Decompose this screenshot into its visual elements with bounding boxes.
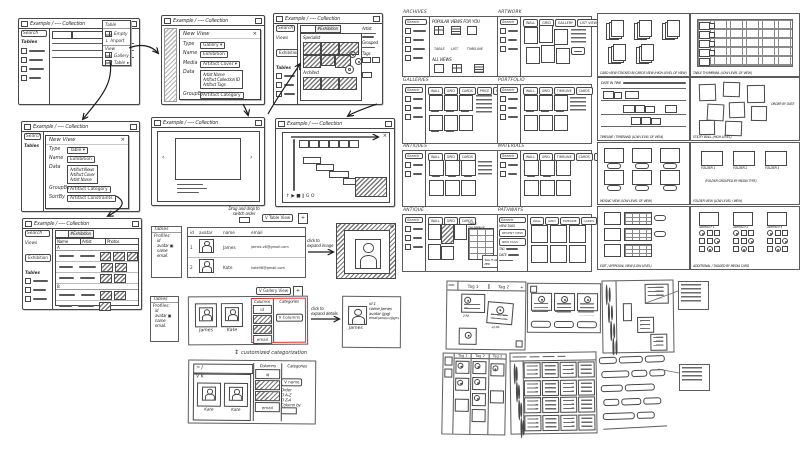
artifact-thumb[interactable] <box>303 42 321 55</box>
artifact-label: ARTIFACT 2 <box>733 225 748 229</box>
matrix-card[interactable] <box>524 397 541 413</box>
window-title: Example / ---- Collection <box>163 120 253 126</box>
matrix-card[interactable] <box>524 415 541 431</box>
card[interactable] <box>429 115 443 131</box>
card[interactable] <box>445 180 460 196</box>
timeline-item <box>645 106 655 113</box>
name-input[interactable]: Exhibition <box>67 156 95 163</box>
groupby-select[interactable]: Artifact Category <box>200 92 244 99</box>
timeline-item <box>641 117 651 125</box>
card-selected[interactable] <box>441 224 454 244</box>
pill-rows-board <box>599 353 676 434</box>
window-icon <box>278 121 285 127</box>
card[interactable] <box>524 115 538 131</box>
menu-section-view: View <box>103 45 130 51</box>
note-scribble <box>478 161 492 177</box>
search-input[interactable]: Search <box>405 19 427 25</box>
panel-title: ANTIQUE <box>403 208 424 213</box>
view-chip[interactable]: PRICE <box>477 87 492 95</box>
person-card[interactable]: Kate <box>197 383 221 412</box>
timeline-item[interactable] <box>299 140 309 148</box>
matrix-card[interactable] <box>542 379 559 395</box>
tab-exhibition[interactable]: #Exhibition <box>315 25 341 33</box>
sticky-card <box>747 85 765 103</box>
level-cell-stacks: CARD VIEW STACKED IN CARDS VIEW (HIGH LE… <box>597 13 690 77</box>
card[interactable] <box>556 160 571 176</box>
tab[interactable] <box>300 25 316 33</box>
matrix-card[interactable] <box>560 397 577 413</box>
media-select[interactable]: Artifact Cover ▾ <box>200 61 240 68</box>
sidebar-item-exhibition[interactable]: Exhibition <box>276 49 298 57</box>
category-name-select[interactable]: V name <box>281 378 302 386</box>
profile-icon[interactable] <box>513 364 515 385</box>
card <box>733 212 753 226</box>
sidebar-item[interactable] <box>276 91 295 97</box>
sticky-note[interactable] <box>459 328 477 345</box>
panel-sidebar: Search VIEW TAGS RECENT VIEW NEW TAGS TA… <box>498 215 528 271</box>
timeline-item <box>625 91 639 99</box>
sidebar-item[interactable] <box>276 73 295 79</box>
kanban-card[interactable] <box>473 361 487 374</box>
table-row[interactable]: 1 James james.v8@gmail.com <box>188 237 305 258</box>
add-icon[interactable] <box>355 58 362 65</box>
matrix-card[interactable] <box>542 362 559 378</box>
prev-arrow[interactable]: ‹ <box>162 154 164 161</box>
close-icon[interactable] <box>255 120 262 126</box>
tagged-item[interactable] <box>623 303 632 321</box>
profile-card[interactable] <box>554 293 575 311</box>
tag-chip[interactable] <box>362 72 372 78</box>
settings-icon[interactable] <box>349 51 356 58</box>
view-chip[interactable]: GRID <box>539 87 553 95</box>
columns-categories-highlight: Columns id email Categories V Columns <box>251 298 306 343</box>
card-stack <box>636 44 653 63</box>
card[interactable] <box>539 25 553 43</box>
card[interactable] <box>444 115 458 131</box>
matrix-card[interactable] <box>560 362 577 378</box>
sidebar-item[interactable] <box>276 82 295 88</box>
player-controls[interactable]: ↑ ▶ ■ ‖ G O <box>286 194 315 199</box>
menu-header: Table <box>103 21 130 29</box>
card[interactable] <box>540 180 555 196</box>
type-select[interactable]: Table ▾ <box>67 147 88 154</box>
collapsed-group-j[interactable]: > J <box>193 363 253 374</box>
card[interactable] <box>524 160 539 176</box>
matrix-card[interactable] <box>578 361 595 377</box>
card[interactable] <box>461 160 476 176</box>
note-chip <box>571 47 585 55</box>
close-icon[interactable] <box>255 18 262 24</box>
card[interactable] <box>556 180 571 196</box>
view-switcher-chip[interactable]: V Gallery View <box>256 287 291 295</box>
timeline-item[interactable] <box>319 140 329 148</box>
columnby-label: Column by <box>281 402 313 407</box>
gallery-icon <box>105 52 112 58</box>
sidebar-item[interactable] <box>25 296 50 302</box>
expanded-details-card[interactable]: James id 1 name James avatar (jpg) email… <box>342 296 401 348</box>
person-card[interactable]: James <box>195 303 217 333</box>
matrix-card[interactable] <box>578 396 595 412</box>
kanban-card[interactable] <box>490 390 504 403</box>
card[interactable] <box>429 95 443 111</box>
note-scribble <box>571 29 586 43</box>
profile-icon[interactable] <box>518 399 520 420</box>
detail-card[interactable] <box>645 284 669 304</box>
card-name: James <box>349 326 363 331</box>
card-stack <box>662 20 679 39</box>
sticky-note[interactable] <box>461 294 485 313</box>
card[interactable] <box>429 160 444 176</box>
sidebar-item[interactable] <box>21 66 47 72</box>
card <box>604 244 621 257</box>
dialog-titlebar: New View× <box>46 136 128 145</box>
close-icon[interactable] <box>130 21 137 27</box>
profile-card[interactable] <box>577 293 598 311</box>
level-cell-mosaic: MOSAIC VIEW (LOW LEVEL OF VIEW) <box>597 142 690 205</box>
close-icon[interactable]: × <box>383 133 387 139</box>
browse-panel: Search WALL GRID CARDS PRICE FILTER <box>402 84 499 144</box>
artifact-thumb[interactable] <box>303 55 321 68</box>
artifact-thumb[interactable] <box>303 77 321 90</box>
sidebar-item[interactable] <box>21 48 47 54</box>
recent-view-button[interactable]: RECENT VIEW <box>499 229 526 237</box>
view-icon-list[interactable]: LIST <box>451 26 461 54</box>
sticky-card <box>707 104 725 122</box>
panel-sidebar: Search <box>498 85 521 143</box>
folder-label: FOLDER 2 <box>733 166 747 170</box>
sidebar-item-tables[interactable]: Tables <box>21 40 47 45</box>
matrix-card[interactable] <box>542 397 559 413</box>
cell-caption: MOSAIC VIEW (LOW LEVEL OF VIEW) <box>600 199 652 203</box>
sidebar-item[interactable] <box>21 75 47 81</box>
expand-badge-icon[interactable] <box>345 65 354 74</box>
search-input[interactable]: Search <box>500 87 518 93</box>
groupby-select[interactable]: Artifact Category <box>67 186 111 193</box>
profile-icon[interactable] <box>515 382 517 403</box>
card[interactable] <box>554 29 568 45</box>
view-chip[interactable]: CARDS <box>576 87 593 95</box>
search-input[interactable]: Search <box>405 217 423 223</box>
search-input[interactable]: Search <box>21 30 47 37</box>
sidebar-item-views[interactable]: Views <box>276 35 295 40</box>
small-card[interactable] <box>637 317 654 333</box>
card[interactable] <box>428 244 441 260</box>
column-cell-id[interactable]: id <box>253 305 272 314</box>
column-header-name[interactable]: name <box>223 230 251 235</box>
view-chip[interactable]: WALL <box>428 87 443 95</box>
table-icon <box>21 66 27 72</box>
search-input[interactable]: Search <box>500 19 518 25</box>
card[interactable] <box>539 115 553 131</box>
view-icon-table[interactable]: TABLE <box>434 26 445 54</box>
card[interactable] <box>459 95 473 111</box>
sidebar-item-exhibition[interactable]: Exhibition <box>25 254 51 262</box>
titlebar: Example / ---- Collection <box>152 118 264 128</box>
window-icon <box>25 221 32 227</box>
sidebar-item-tables[interactable]: Tables <box>276 65 295 70</box>
timeline-item <box>603 91 614 99</box>
kanban-card[interactable] <box>455 399 469 412</box>
next-arrow[interactable]: › <box>250 154 252 161</box>
column-header[interactable]: Artist <box>81 239 106 244</box>
data-list[interactable]: Artifact News Artifact Cover Artist Name <box>67 165 98 184</box>
panel-sidebar: Search <box>403 17 430 76</box>
expanded-image-card[interactable] <box>344 230 390 274</box>
add-tab-button[interactable]: + <box>518 284 525 289</box>
person-card[interactable]: Kate <box>221 303 243 333</box>
sticky-card <box>699 120 715 135</box>
kanban-column-tag1[interactable]: Tag 1 <box>455 354 471 359</box>
card-stack <box>606 20 623 39</box>
column-header[interactable]: Name <box>56 239 81 244</box>
type-select[interactable]: Gallery ▾ <box>200 42 225 49</box>
view-icon-timeline[interactable]: TIMELINE <box>467 26 483 54</box>
artifact-thumb[interactable] <box>321 55 335 66</box>
profile-icon[interactable] <box>520 417 522 438</box>
column-cell-email[interactable]: email <box>255 402 280 412</box>
tag-chip[interactable] <box>362 57 371 63</box>
search-input[interactable]: Search <box>500 153 518 159</box>
panel-title: GALLERIES <box>403 78 429 83</box>
view-chip[interactable]: GRID <box>545 217 559 225</box>
artifact-thumb[interactable] <box>321 77 339 90</box>
mosaic-card <box>604 148 624 163</box>
mosaic-card <box>632 148 652 163</box>
sidebar-item[interactable] <box>25 287 50 293</box>
column-header-email[interactable]: email <box>251 230 263 235</box>
artist-label: Artist <box>362 26 380 31</box>
column-cell-name[interactable] <box>255 391 280 401</box>
column-header[interactable]: Photos <box>106 239 138 244</box>
column-cell-id[interactable]: id <box>255 369 280 379</box>
tab[interactable] <box>55 230 69 238</box>
menu-item-gallery[interactable]: Gallery <box>105 52 128 58</box>
sidebar-item-tables[interactable]: Tables <box>24 143 41 148</box>
add-view-button[interactable]: + <box>298 213 308 224</box>
cascade-bar <box>329 171 349 178</box>
matrix-card[interactable] <box>578 379 595 395</box>
card[interactable] <box>524 95 538 111</box>
sidebar: Search Views Exhibition Tables <box>23 228 53 309</box>
kanban-card[interactable] <box>473 377 487 390</box>
artifact-thumb[interactable] <box>321 42 339 55</box>
card[interactable] <box>444 95 458 111</box>
close-icon[interactable] <box>130 124 137 130</box>
small-card[interactable] <box>650 334 667 351</box>
table-row[interactable]: 2 Kate kate98@gmail.com <box>188 258 305 277</box>
view-chip[interactable]: CARDS <box>576 153 593 161</box>
card[interactable] <box>524 180 539 196</box>
tag-chip[interactable] <box>372 57 381 63</box>
browse-panel: Search WALL GRID CARDS TABLE THUMBNAIL T… <box>402 214 499 272</box>
card[interactable] <box>569 245 586 263</box>
sortby-select[interactable]: Artifact Constraints <box>67 195 116 202</box>
card[interactable] <box>445 160 460 176</box>
panel-main: POPULAR VIEWS FOR YOU TABLE LIST TIMELIN… <box>430 17 498 76</box>
matrix-card[interactable] <box>524 362 541 378</box>
resize-handle[interactable] <box>516 340 523 347</box>
kanban-column-tag3[interactable]: Tag 3 <box>489 354 505 359</box>
field-groupby: GroupByArtifact Category <box>49 186 125 193</box>
view-chip[interactable]: WALL <box>530 217 544 225</box>
window-title: Example / ---- Collection <box>30 21 110 27</box>
timeline-item <box>665 105 677 113</box>
card[interactable] <box>454 224 467 240</box>
card[interactable] <box>569 225 586 243</box>
close-icon[interactable]: × <box>120 137 125 143</box>
columns-header: Columns <box>252 299 273 304</box>
profiles-schema-box: Tables Profiles: id avatar ▣ name email. <box>150 296 179 342</box>
card[interactable] <box>540 160 555 176</box>
sidebar-item[interactable] <box>25 278 50 284</box>
card[interactable] <box>459 115 473 131</box>
grouped-table: Name Artist Photos A B <box>55 238 139 306</box>
column-cell-avatar[interactable] <box>253 315 272 324</box>
menu-item-import[interactable]: ↓Import <box>105 38 128 43</box>
timeline-item <box>623 105 635 113</box>
column-cell-name[interactable] <box>253 325 272 334</box>
column-cell-email[interactable]: email <box>253 335 272 344</box>
new-tags-button[interactable]: NEW TAGS <box>499 238 526 246</box>
card[interactable] <box>526 47 540 64</box>
approval-table <box>624 244 652 257</box>
sticky-card <box>699 84 717 102</box>
preview-thumb[interactable] <box>355 177 387 197</box>
kanban-board: Tag 1 Tag 2 Tag 3 <box>441 352 506 435</box>
panel-main: WALL GRID GALLERY LIST VIEW <box>521 17 602 76</box>
column-header-id[interactable]: id <box>188 230 199 235</box>
kanban-card[interactable] <box>455 378 469 391</box>
name-input[interactable]: Exhibition <box>200 51 228 58</box>
view-chip[interactable]: TIMELINE <box>554 87 575 95</box>
profile-card[interactable] <box>531 293 552 311</box>
close-icon[interactable] <box>385 121 392 127</box>
view-chip[interactable]: GALLERY <box>555 19 576 27</box>
note-scribble <box>570 97 586 113</box>
person-card[interactable]: Kate <box>224 383 248 412</box>
new-view-dialog: New View× TypeTable ▾ NameExhibition Dat… <box>45 135 129 209</box>
card[interactable] <box>539 95 553 111</box>
matrix-card[interactable] <box>561 414 578 430</box>
sidebar-item[interactable] <box>21 57 47 63</box>
sidebar-item-views[interactable]: Views <box>25 240 50 245</box>
categories-select[interactable]: V Columns <box>276 314 303 322</box>
search-input[interactable]: Search <box>276 25 295 32</box>
search-input[interactable]: Search <box>499 217 526 223</box>
group-label: Architect <box>303 70 319 75</box>
card[interactable] <box>541 45 555 63</box>
matrix-card[interactable] <box>524 380 541 396</box>
view-chip[interactable]: WALL <box>523 19 538 27</box>
sidebar-item-tables[interactable]: Tables <box>25 270 50 275</box>
card[interactable] <box>441 246 454 260</box>
folder-icon <box>765 151 787 166</box>
matrix-card[interactable] <box>560 379 577 395</box>
cell-caption: TABLE THUMBNAIL (LOW LEVEL OF VIEW) <box>693 71 797 75</box>
card[interactable] <box>461 180 476 196</box>
kanban-card[interactable] <box>490 363 504 376</box>
cell-caption: CARD VIEW STACKED IN CARDS VIEW (HIGH LE… <box>600 71 687 75</box>
browse-panel: Search VIEW TAGS RECENT VIEW NEW TAGS TA… <box>497 214 592 272</box>
menu-item-empty[interactable]: Empty <box>105 31 128 37</box>
tab-tag1[interactable]: Tag 1 <box>458 283 489 288</box>
card[interactable] <box>554 115 568 131</box>
view-chip[interactable]: GRID <box>444 87 458 95</box>
search-input[interactable]: Search <box>405 153 423 159</box>
card[interactable] <box>531 245 548 263</box>
card[interactable] <box>554 95 568 111</box>
matrix-card[interactable] <box>579 414 596 430</box>
add-icon[interactable] <box>530 286 537 293</box>
kanban-column-tag2[interactable]: Tag 2 <box>472 354 488 359</box>
tab[interactable] <box>52 31 72 39</box>
timeline-item[interactable] <box>339 140 349 148</box>
search-input[interactable]: Search <box>405 87 423 93</box>
card <box>604 228 621 241</box>
timeline-item[interactable] <box>309 140 319 148</box>
browse-panel: Search POPULAR VIEWS FOR YOU TABLE LIST … <box>402 16 499 77</box>
close-icon[interactable] <box>373 16 380 22</box>
sticky-card <box>729 102 746 119</box>
close-icon[interactable] <box>132 221 139 227</box>
timeline-item[interactable] <box>349 140 359 148</box>
kanban-card[interactable] <box>472 409 486 422</box>
menu-item-table[interactable]: Table▸ <box>105 60 128 66</box>
matrix-card[interactable] <box>542 414 559 430</box>
expanded-group-k[interactable]: V K Kate Kate <box>193 373 251 421</box>
search-input[interactable]: Search <box>25 230 50 237</box>
view-chip[interactable]: TIMELINE <box>560 217 580 225</box>
sticky-note[interactable] <box>486 301 514 325</box>
dialog-title: New View <box>183 31 209 37</box>
panel-sidebar: Search <box>403 85 426 143</box>
close-icon[interactable]: ⊗ <box>390 224 394 230</box>
timeline-item[interactable] <box>329 140 339 148</box>
tab-exhibition[interactable]: #Exhibition <box>68 230 94 238</box>
table-icon <box>276 73 282 79</box>
card[interactable] <box>429 180 444 196</box>
column-header-avatar[interactable]: avatar <box>199 230 223 235</box>
search-input[interactable]: Search <box>24 133 41 140</box>
panel-title: ANTIQUES <box>403 144 427 149</box>
close-icon[interactable]: × <box>252 31 257 37</box>
columnby-input[interactable] <box>281 407 297 414</box>
view-chip[interactable]: CARDS <box>581 217 597 225</box>
table-icon <box>105 60 112 66</box>
column-cell-avatar[interactable] <box>255 380 280 390</box>
card[interactable] <box>531 225 548 243</box>
card[interactable] <box>556 48 570 64</box>
level-cell-timeline: DATE IN TIME TIMELINE / TIMEBAND (LOW LE… <box>597 77 690 141</box>
view-chip[interactable]: WALL <box>523 87 538 95</box>
card[interactable] <box>524 27 538 44</box>
card[interactable] <box>550 245 567 263</box>
tags-label: Tags <box>362 51 380 56</box>
expand-image-note: click toexpand image <box>307 238 335 248</box>
kanban-card[interactable] <box>456 361 470 374</box>
level-cell-sticky-wall: ORDER BY DATE STICKY WALL (HIGH LEVEL) <box>690 77 800 141</box>
card[interactable] <box>550 225 567 243</box>
view-chip[interactable]: CARDS <box>459 87 476 95</box>
data-list[interactable]: Artist Name Artifact Collection ID Artif… <box>200 70 243 89</box>
panel-main: WALL GRID CARDS TABLE THUMBNAIL TAG IT A… <box>426 215 498 271</box>
artifact-thumb[interactable] <box>339 77 357 90</box>
kanban-card[interactable] <box>472 393 486 406</box>
arrow-dialog-to-carousel <box>243 104 248 115</box>
tab-tag2[interactable]: Tag 2 <box>489 284 519 289</box>
card[interactable] <box>428 224 441 240</box>
view-switcher-chip[interactable]: V Table View <box>262 214 293 222</box>
